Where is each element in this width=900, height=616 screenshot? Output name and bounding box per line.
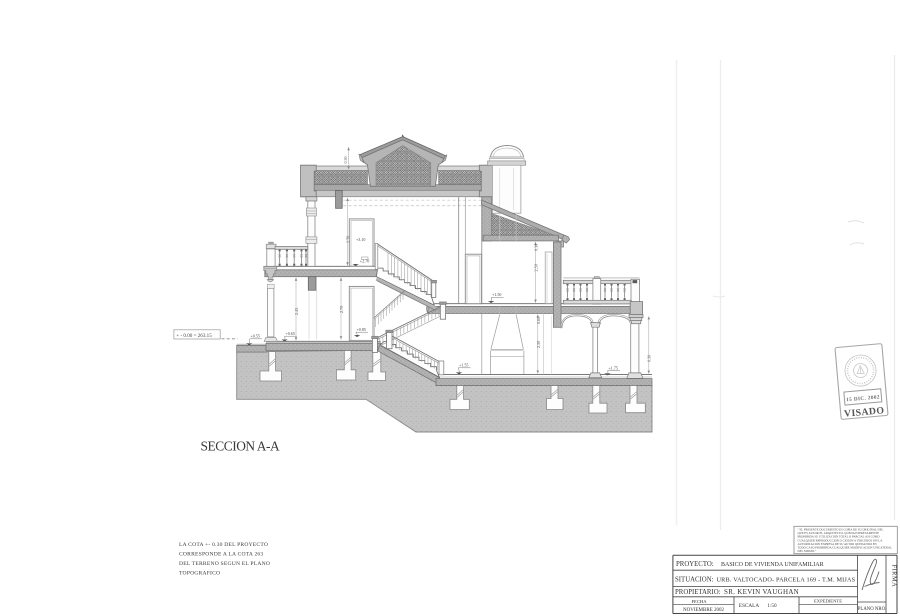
svg-text:+1.75: +1.75 xyxy=(609,365,618,370)
svg-text:+1.50: +1.50 xyxy=(492,292,501,297)
svg-text:2.50: 2.50 xyxy=(536,341,541,348)
svg-text:PROYECTO:: PROYECTO: xyxy=(676,561,714,568)
svg-text:DEL TERRENO SEGUN EL PLANO: DEL TERRENO SEGUN EL PLANO xyxy=(179,561,270,567)
svg-text:0.60: 0.60 xyxy=(536,317,541,324)
svg-text:SECCION A-A: SECCION A-A xyxy=(201,438,281,453)
svg-text:FECHA: FECHA xyxy=(691,599,707,604)
svg-text:+2.70: +2.70 xyxy=(360,258,369,263)
svg-text:0.30: 0.30 xyxy=(647,355,652,362)
svg-text:2.43: 2.43 xyxy=(294,308,299,315)
svg-text:ESCALA: ESCALA xyxy=(739,603,759,609)
svg-text:VISADO: VISADO xyxy=(844,405,885,419)
svg-text:1:50: 1:50 xyxy=(767,603,777,609)
svg-text:TOPOGRAFICO: TOPOGRAFICO xyxy=(179,570,220,576)
svg-text:+0.85: +0.85 xyxy=(357,327,366,332)
svg-text:DEL MISMO.": DEL MISMO." xyxy=(798,549,817,553)
svg-text:+ - 0.00 = 263.15: + - 0.00 = 263.15 xyxy=(176,333,212,339)
svg-text:SITUACION:: SITUACION: xyxy=(675,576,714,583)
svg-text:URB. VALTOCADO- PARCELA 169 -: URB. VALTOCADO- PARCELA 169 - T.M. MIJAS xyxy=(717,576,856,583)
svg-text:BASICO DE VIVIENDA UNIFAMILIAR: BASICO DE VIVIENDA UNIFAMILIAR xyxy=(721,562,824,568)
svg-text:PROPIETARIO:: PROPIETARIO: xyxy=(675,589,721,596)
svg-text:0.30: 0.30 xyxy=(533,244,538,251)
svg-text:+0.65: +0.65 xyxy=(285,331,294,336)
svg-text:+0.55: +0.55 xyxy=(251,334,260,339)
svg-text:2.70: 2.70 xyxy=(345,236,350,243)
svg-text:LA COTA +- 0.30 DEL PROYECTO: LA COTA +- 0.30 DEL PROYECTO xyxy=(179,542,268,548)
svg-text:+3.10: +3.10 xyxy=(356,237,365,242)
svg-text:2.70: 2.70 xyxy=(339,306,344,313)
svg-text:CORRESPONDE A LA COTA 263: CORRESPONDE A LA COTA 263 xyxy=(179,551,263,557)
svg-text:FIRMA: FIRMA xyxy=(891,565,898,588)
svg-text:NOVIEMBRE 2002: NOVIEMBRE 2002 xyxy=(683,608,724,613)
svg-text:2.50: 2.50 xyxy=(533,264,538,271)
svg-text:+1.55: +1.55 xyxy=(459,363,468,368)
svg-text:PLANO NRO.: PLANO NRO. xyxy=(858,607,887,612)
svg-text:EXPEDIENTE: EXPEDIENTE xyxy=(814,599,842,604)
svg-text:SR. KEVIN VAUGHAN: SR. KEVIN VAUGHAN xyxy=(724,588,799,596)
svg-text:0.30: 0.30 xyxy=(343,157,348,164)
